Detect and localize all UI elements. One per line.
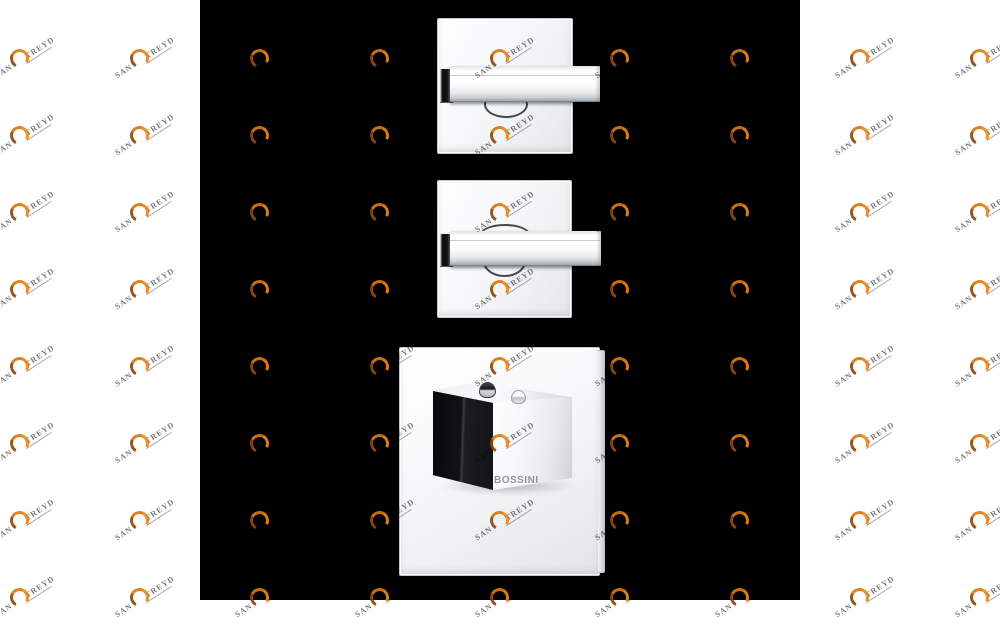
watermark-brand-prefix: SAN bbox=[0, 370, 14, 388]
watermark-tagline-line bbox=[986, 586, 1000, 603]
watermark-brand-suffix: TREYD bbox=[143, 35, 176, 61]
knob-button-right bbox=[511, 390, 526, 404]
watermark-brand-prefix: SAN bbox=[833, 524, 854, 542]
watermark-logo: SANTREYD bbox=[0, 476, 80, 564]
watermark-brand-suffix: TREYD bbox=[23, 189, 56, 215]
watermark-logo: SANTREYD bbox=[90, 476, 201, 564]
watermark-logo: SANTREYD bbox=[810, 399, 921, 487]
watermark-brand-prefix: SAN bbox=[593, 601, 614, 619]
watermark-tagline-line bbox=[26, 509, 52, 526]
watermark-tagline-line bbox=[26, 355, 52, 372]
watermark-arc-icon bbox=[7, 585, 31, 609]
watermark-tagline-line bbox=[866, 124, 892, 141]
watermark-brand-prefix: SAN bbox=[953, 216, 974, 234]
watermark-brand-prefix: SAN bbox=[353, 601, 374, 619]
watermark-brand-prefix: SAN bbox=[113, 216, 134, 234]
watermark-tagline-line bbox=[26, 47, 52, 64]
watermark-arc-icon bbox=[7, 123, 31, 147]
watermark-brand-suffix: TREYD bbox=[983, 343, 1000, 369]
watermark-brand-suffix: TREYD bbox=[863, 189, 896, 215]
watermark-arc-icon bbox=[847, 277, 871, 301]
watermark-brand-suffix: TREYD bbox=[23, 574, 56, 600]
watermark-brand-suffix: TREYD bbox=[143, 574, 176, 600]
watermark-logo: SANTREYD bbox=[90, 245, 201, 333]
watermark-logo: SANTREYD bbox=[930, 245, 1000, 333]
mixer-plate-side-edge bbox=[598, 350, 605, 573]
watermark-tagline-line bbox=[26, 201, 52, 218]
watermark-brand-prefix: SAN bbox=[953, 293, 974, 311]
watermark-tagline-line bbox=[146, 124, 172, 141]
watermark-tagline-line bbox=[146, 47, 172, 64]
watermark-tagline-line bbox=[26, 586, 52, 603]
product-photo-canvas: { "canvas": { "panel_color": "#000000", … bbox=[0, 0, 1000, 600]
watermark-tagline-line bbox=[26, 432, 52, 449]
watermark-logo: SANTREYD bbox=[90, 399, 201, 487]
watermark-logo: SANTREYD bbox=[930, 322, 1000, 410]
watermark-brand-suffix: TREYD bbox=[143, 112, 176, 138]
watermark-tagline-line bbox=[26, 124, 52, 141]
watermark-tagline-line bbox=[866, 201, 892, 218]
watermark-arc-icon bbox=[127, 431, 151, 455]
watermark-logo: SANTREYD bbox=[930, 91, 1000, 179]
watermark-logo: SANTREYD bbox=[90, 91, 201, 179]
watermark-brand-prefix: SAN bbox=[113, 293, 134, 311]
watermark-brand-prefix: SAN bbox=[113, 524, 134, 542]
watermark-arc-icon bbox=[7, 200, 31, 224]
watermark-brand-suffix: TREYD bbox=[983, 497, 1000, 523]
watermark-brand-suffix: TREYD bbox=[23, 35, 56, 61]
watermark-brand-prefix: SAN bbox=[113, 139, 134, 157]
watermark-brand-prefix: SAN bbox=[833, 216, 854, 234]
watermark-brand-prefix: SAN bbox=[0, 62, 14, 80]
watermark-tagline-line bbox=[866, 47, 892, 64]
watermark-brand-prefix: SAN bbox=[953, 524, 974, 542]
watermark-arc-icon bbox=[127, 200, 151, 224]
watermark-brand-prefix: SAN bbox=[113, 601, 134, 619]
watermark-brand-prefix: SAN bbox=[713, 601, 734, 619]
watermark-brand-suffix: TREYD bbox=[143, 343, 176, 369]
watermark-tagline-line bbox=[986, 201, 1000, 218]
knob-button-left bbox=[479, 382, 496, 398]
watermark-tagline-line bbox=[866, 278, 892, 295]
watermark-brand-prefix: SAN bbox=[833, 601, 854, 619]
watermark-logo: SANTREYD bbox=[0, 168, 80, 256]
watermark-logo: SANTREYD bbox=[0, 245, 80, 333]
watermark-arc-icon bbox=[967, 277, 991, 301]
watermark-brand-suffix: TREYD bbox=[863, 35, 896, 61]
watermark-tagline-line bbox=[986, 509, 1000, 526]
watermark-tagline-line bbox=[146, 355, 172, 372]
watermark-logo: SANTREYD bbox=[810, 168, 921, 256]
watermark-brand-suffix: TREYD bbox=[863, 112, 896, 138]
watermark-tagline-line bbox=[986, 47, 1000, 64]
watermark-brand-prefix: SAN bbox=[0, 216, 14, 234]
watermark-tagline-line bbox=[866, 586, 892, 603]
watermark-arc-icon bbox=[847, 46, 871, 70]
watermark-logo: SANTREYD bbox=[810, 91, 921, 179]
watermark-logo: SANTREYD bbox=[90, 14, 201, 102]
watermark-logo: SANTREYD bbox=[0, 14, 80, 102]
watermark-brand-prefix: SAN bbox=[953, 447, 974, 465]
watermark-tagline-line bbox=[866, 509, 892, 526]
watermark-logo: SANTREYD bbox=[930, 168, 1000, 256]
watermark-logo: SANTREYD bbox=[0, 553, 80, 641]
watermark-arc-icon bbox=[967, 508, 991, 532]
watermark-tagline-line bbox=[986, 124, 1000, 141]
watermark-arc-icon bbox=[847, 508, 871, 532]
watermark-arc-icon bbox=[7, 46, 31, 70]
watermark-logo: SANTREYD bbox=[0, 91, 80, 179]
watermark-tagline-line bbox=[866, 355, 892, 372]
watermark-brand-prefix: SAN bbox=[233, 601, 254, 619]
watermark-brand-prefix: SAN bbox=[833, 293, 854, 311]
watermark-brand-suffix: TREYD bbox=[863, 420, 896, 446]
watermark-arc-icon bbox=[127, 354, 151, 378]
watermark-logo: SANTREYD bbox=[930, 14, 1000, 102]
watermark-brand-suffix: TREYD bbox=[143, 189, 176, 215]
watermark-logo: SANTREYD bbox=[90, 168, 201, 256]
watermark-arc-icon bbox=[127, 123, 151, 147]
watermark-tagline-line bbox=[986, 355, 1000, 372]
top-trim-lever-handle bbox=[450, 66, 600, 102]
watermark-brand-suffix: TREYD bbox=[863, 497, 896, 523]
watermark-arc-icon bbox=[967, 123, 991, 147]
watermark-logo: SANTREYD bbox=[810, 553, 921, 641]
watermark-logo: SANTREYD bbox=[810, 245, 921, 333]
watermark-arc-icon bbox=[7, 508, 31, 532]
watermark-brand-suffix: TREYD bbox=[23, 420, 56, 446]
watermark-tagline-line bbox=[146, 509, 172, 526]
watermark-brand-prefix: SAN bbox=[0, 601, 14, 619]
watermark-brand-suffix: TREYD bbox=[23, 112, 56, 138]
watermark-brand-suffix: TREYD bbox=[23, 497, 56, 523]
watermark-brand-prefix: SAN bbox=[0, 139, 14, 157]
watermark-tagline-line bbox=[146, 201, 172, 218]
watermark-arc-icon bbox=[127, 585, 151, 609]
watermark-arc-icon bbox=[7, 431, 31, 455]
watermark-arc-icon bbox=[847, 431, 871, 455]
watermark-brand-suffix: TREYD bbox=[863, 343, 896, 369]
watermark-logo: SANTREYD bbox=[930, 553, 1000, 641]
watermark-logo: SANTREYD bbox=[90, 553, 201, 641]
watermark-brand-suffix: TREYD bbox=[143, 420, 176, 446]
watermark-tagline-line bbox=[146, 586, 172, 603]
watermark-arc-icon bbox=[967, 200, 991, 224]
watermark-brand-suffix: TREYD bbox=[983, 112, 1000, 138]
watermark-arc-icon bbox=[127, 46, 151, 70]
watermark-brand-suffix: TREYD bbox=[983, 35, 1000, 61]
watermark-brand-prefix: SAN bbox=[833, 62, 854, 80]
watermark-arc-icon bbox=[967, 585, 991, 609]
watermark-brand-suffix: TREYD bbox=[863, 574, 896, 600]
watermark-brand-suffix: TREYD bbox=[983, 420, 1000, 446]
watermark-logo: SANTREYD bbox=[90, 322, 201, 410]
watermark-brand-prefix: SAN bbox=[953, 139, 974, 157]
watermark-tagline-line bbox=[26, 278, 52, 295]
watermark-brand-suffix: TREYD bbox=[983, 574, 1000, 600]
watermark-brand-suffix: TREYD bbox=[143, 266, 176, 292]
watermark-arc-icon bbox=[967, 431, 991, 455]
watermark-tagline-line bbox=[146, 278, 172, 295]
watermark-logo: SANTREYD bbox=[0, 322, 80, 410]
watermark-brand-prefix: SAN bbox=[953, 601, 974, 619]
watermark-logo: SANTREYD bbox=[930, 476, 1000, 564]
watermark-arc-icon bbox=[7, 354, 31, 378]
watermark-brand-prefix: SAN bbox=[953, 370, 974, 388]
watermark-brand-suffix: TREYD bbox=[23, 266, 56, 292]
watermark-brand-prefix: SAN bbox=[833, 139, 854, 157]
watermark-brand-prefix: SAN bbox=[953, 62, 974, 80]
watermark-logo: SANTREYD bbox=[0, 399, 80, 487]
bossini-brand-label: BOSSINI bbox=[494, 475, 539, 486]
cube-handle-dark-face bbox=[433, 391, 493, 490]
watermark-logo: SANTREYD bbox=[810, 14, 921, 102]
watermark-brand-suffix: TREYD bbox=[863, 266, 896, 292]
watermark-brand-prefix: SAN bbox=[113, 370, 134, 388]
watermark-arc-icon bbox=[847, 123, 871, 147]
watermark-arc-icon bbox=[967, 46, 991, 70]
watermark-brand-prefix: SAN bbox=[0, 524, 14, 542]
middle-trim-lever-handle bbox=[450, 231, 601, 266]
watermark-brand-suffix: TREYD bbox=[983, 189, 1000, 215]
watermark-arc-icon bbox=[967, 354, 991, 378]
watermark-arc-icon bbox=[7, 277, 31, 301]
watermark-arc-icon bbox=[847, 585, 871, 609]
watermark-logo: SANTREYD bbox=[810, 476, 921, 564]
watermark-arc-icon bbox=[847, 354, 871, 378]
watermark-brand-prefix: SAN bbox=[833, 370, 854, 388]
watermark-brand-prefix: SAN bbox=[113, 62, 134, 80]
watermark-brand-prefix: SAN bbox=[113, 447, 134, 465]
watermark-logo: SANTREYD bbox=[810, 322, 921, 410]
watermark-brand-prefix: SAN bbox=[0, 447, 14, 465]
watermark-arc-icon bbox=[127, 277, 151, 301]
watermark-brand-prefix: SAN bbox=[833, 447, 854, 465]
watermark-brand-suffix: TREYD bbox=[143, 497, 176, 523]
watermark-tagline-line bbox=[146, 432, 172, 449]
watermark-arc-icon bbox=[847, 200, 871, 224]
watermark-brand-suffix: TREYD bbox=[983, 266, 1000, 292]
watermark-brand-suffix: TREYD bbox=[23, 343, 56, 369]
watermark-arc-icon bbox=[127, 508, 151, 532]
watermark-tagline-line bbox=[986, 432, 1000, 449]
watermark-brand-prefix: SAN bbox=[0, 293, 14, 311]
watermark-brand-prefix: SAN bbox=[473, 601, 494, 619]
watermark-logo: SANTREYD bbox=[930, 399, 1000, 487]
watermark-tagline-line bbox=[866, 432, 892, 449]
watermark-tagline-line bbox=[986, 278, 1000, 295]
